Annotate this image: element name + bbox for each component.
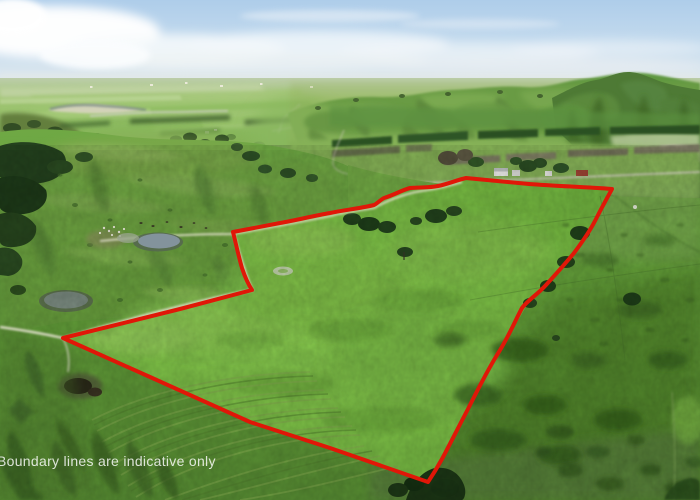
svg-text:Boundary lines are indicative: Boundary lines are indicative only — [0, 453, 216, 469]
